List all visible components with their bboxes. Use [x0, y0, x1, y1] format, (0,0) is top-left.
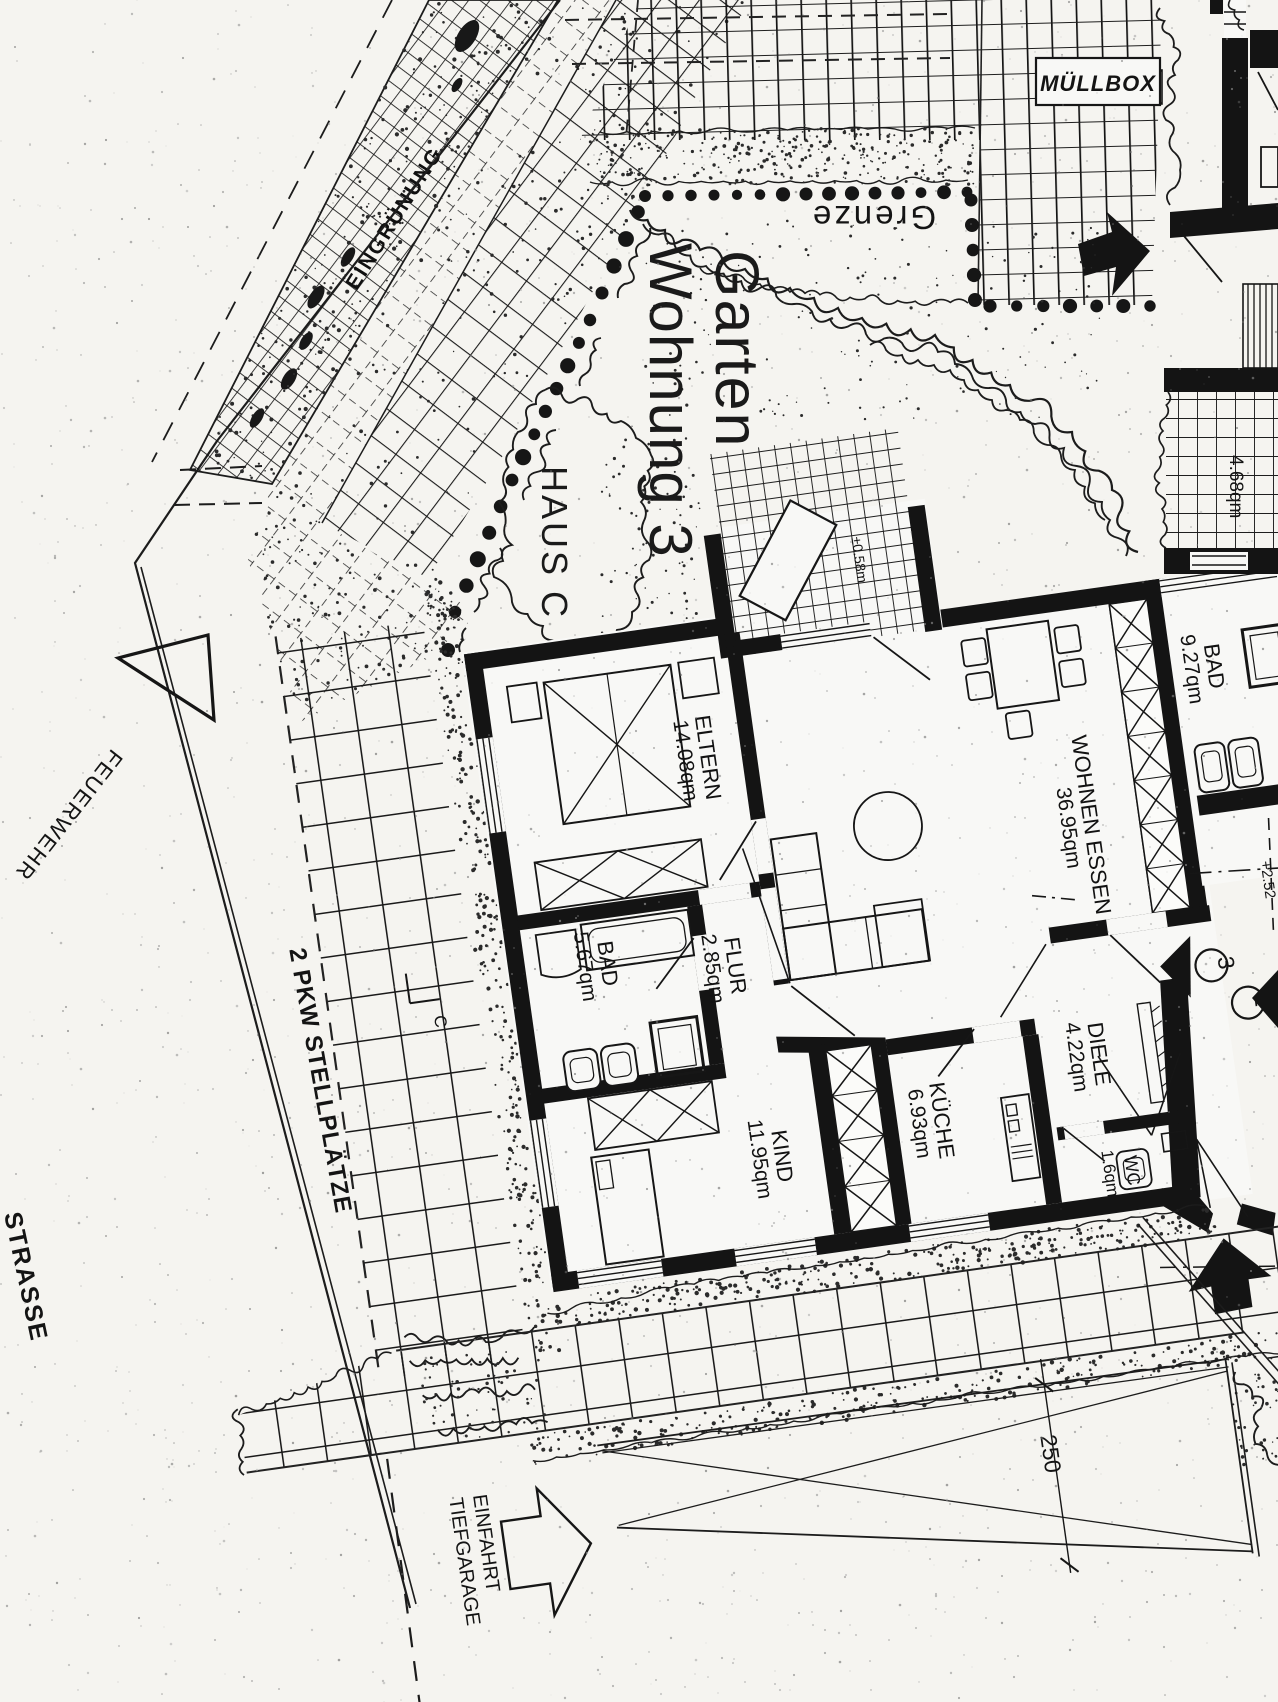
svg-text:Garten: Garten	[703, 250, 771, 449]
svg-text:MÜLLBOX: MÜLLBOX	[1040, 71, 1156, 96]
svg-text:HAUS C: HAUS C	[534, 466, 575, 620]
svg-text:Grenze: Grenze	[810, 199, 936, 236]
svg-text:WC: WC	[1120, 1154, 1144, 1186]
svg-text:250: 250	[1035, 1433, 1066, 1475]
svg-text:C: C	[430, 1014, 451, 1029]
svg-text:Wohnung 3: Wohnung 3	[637, 243, 704, 558]
svg-text:4.68qm: 4.68qm	[1225, 455, 1246, 518]
